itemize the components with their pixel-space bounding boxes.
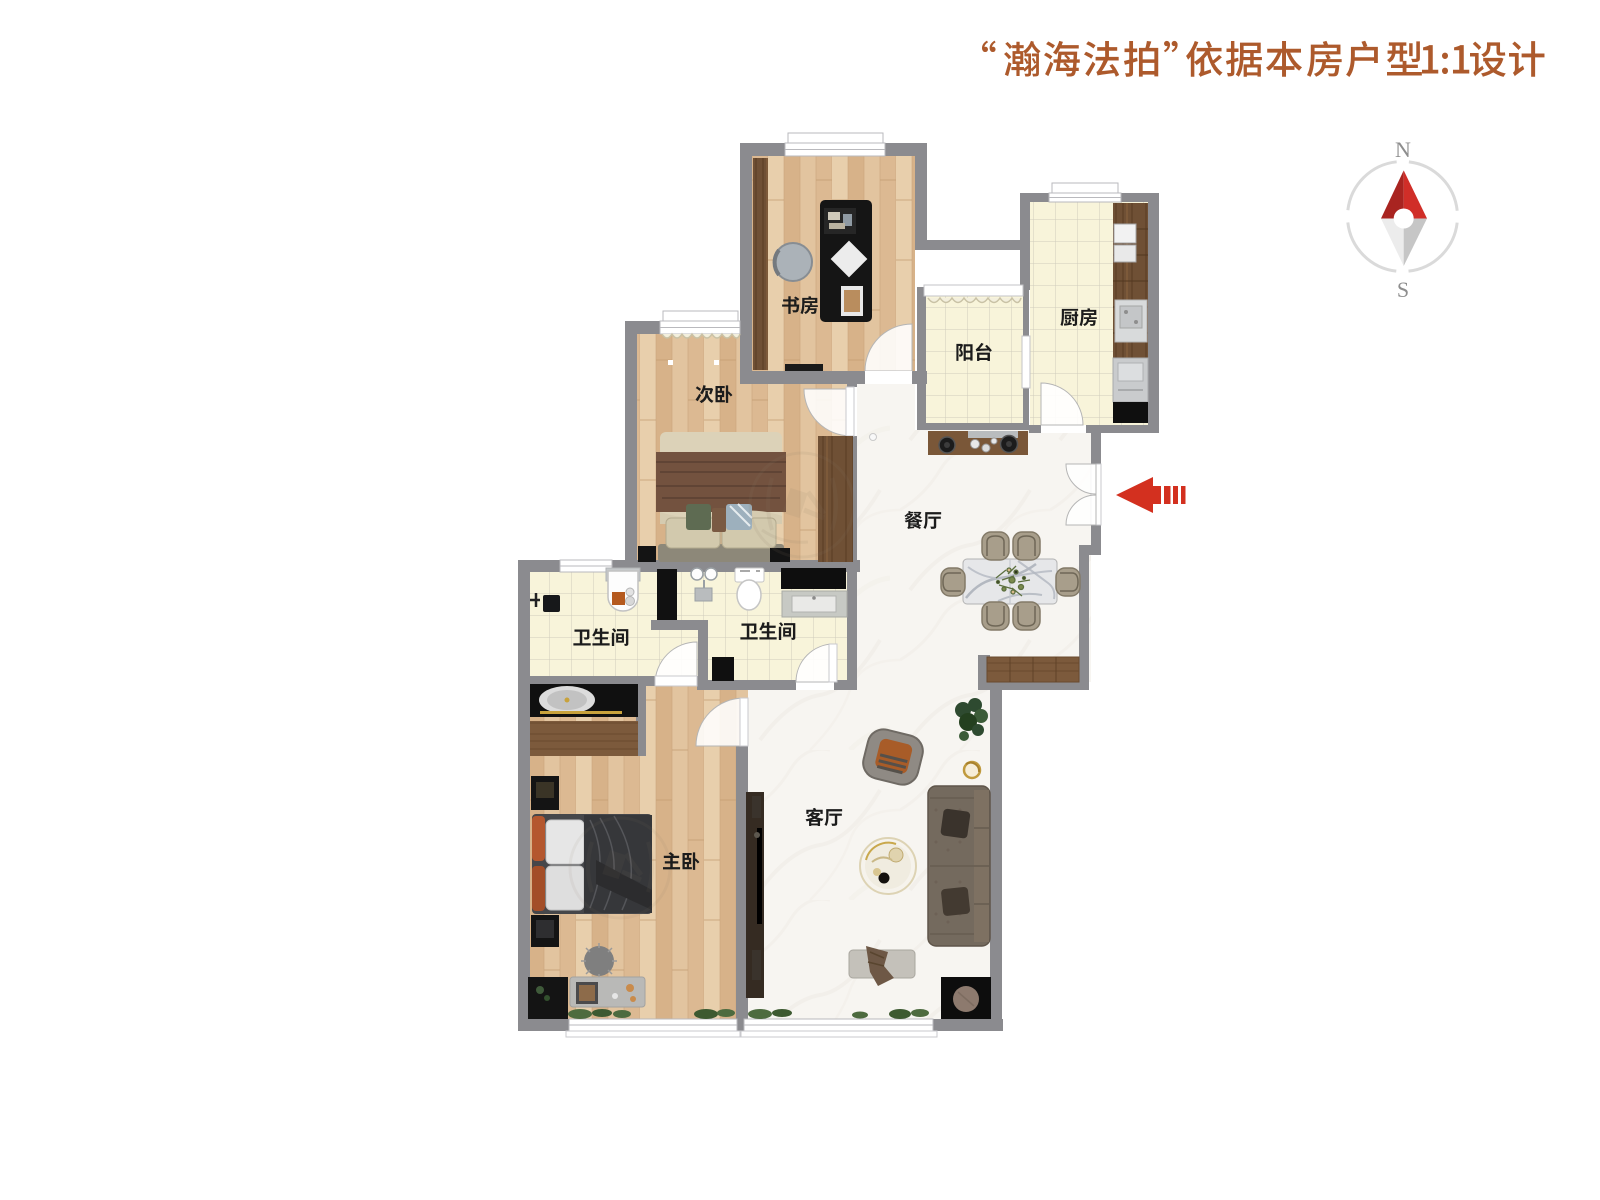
- svg-text:N: N: [1395, 137, 1411, 162]
- svg-text:S: S: [1397, 277, 1409, 302]
